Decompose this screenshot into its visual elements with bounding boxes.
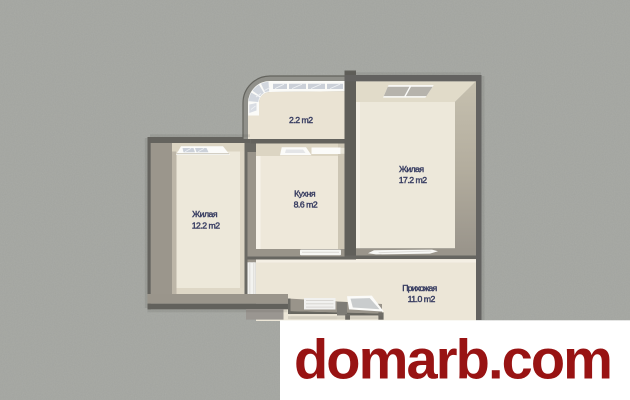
svg-text:Жилая: Жилая [399,164,424,174]
svg-text:11.0 m2: 11.0 m2 [408,294,436,304]
svg-text:2.2 m2: 2.2 m2 [289,115,313,125]
svg-text:12.2 m2: 12.2 m2 [192,220,221,230]
svg-text:Кухня: Кухня [294,188,316,198]
svg-text:8.6 m2: 8.6 m2 [294,199,318,209]
svg-text:17.2 m2: 17.2 m2 [399,175,428,185]
svg-text:Жилая: Жилая [192,209,218,219]
svg-text:Прихожая: Прихожая [402,283,437,293]
svg-text:domarb.com: domarb.com [294,328,611,391]
